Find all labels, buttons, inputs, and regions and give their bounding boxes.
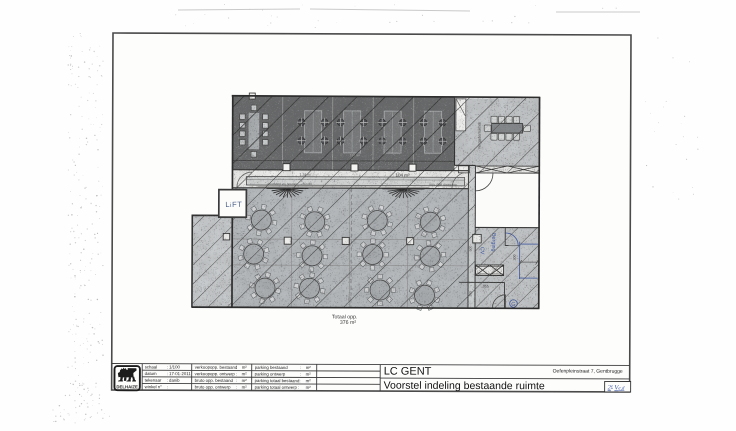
- svg-text:Oefenpleinstraat 7, Gentbrugge: Oefenpleinstraat 7, Gentbrugge: [553, 368, 623, 374]
- svg-text:LC GENT: LC GENT: [384, 366, 432, 378]
- svg-text:: danib: : danib: [167, 378, 181, 383]
- svg-text:: 17-01-2011: : 17-01-2011: [167, 371, 192, 376]
- svg-text:parking totaal bestaand:: parking totaal bestaand:: [255, 378, 301, 383]
- svg-text:m²: m²: [306, 372, 312, 377]
- svg-text:parking totaal ontwerp :: parking totaal ontwerp :: [255, 385, 300, 390]
- svg-text:bruto opp. ontwerp: bruto opp. ontwerp: [195, 384, 231, 389]
- svg-text::: :: [167, 384, 168, 389]
- svg-text:datum: datum: [145, 371, 157, 376]
- svg-text::: :: [300, 372, 301, 377]
- svg-text:m²: m²: [242, 365, 248, 370]
- svg-text:tekenaar: tekenaar: [145, 378, 162, 383]
- svg-text:winkel n°: winkel n°: [145, 384, 163, 389]
- svg-text:bruto opp. bestaand: bruto opp. bestaand: [195, 378, 234, 383]
- svg-text:parking bestaand: parking bestaand: [255, 365, 289, 370]
- svg-text:m²: m²: [306, 365, 312, 370]
- svg-text:m²: m²: [306, 385, 312, 390]
- svg-text:: 1/100: : 1/100: [167, 365, 181, 370]
- svg-text:LiFT: LiFT: [225, 200, 242, 209]
- svg-text:DELHAIZE: DELHAIZE: [116, 384, 138, 389]
- svg-text:verkoopopp. bestaand: verkoopopp. bestaand: [195, 365, 238, 370]
- svg-text:m²: m²: [242, 371, 248, 376]
- svg-text::: :: [236, 371, 237, 376]
- svg-text:parking ontwerp: parking ontwerp: [255, 371, 286, 376]
- svg-text:m²: m²: [306, 378, 312, 383]
- svg-text:m²: m²: [242, 385, 248, 390]
- svg-text:376 m²: 376 m²: [340, 320, 356, 326]
- svg-text::: :: [236, 378, 237, 383]
- svg-text:verkoopopp. ontwerp: verkoopopp. ontwerp: [195, 371, 236, 376]
- svg-text:schaal: schaal: [145, 364, 157, 369]
- svg-text:Voorstel indeling bestaande ru: Voorstel indeling bestaande ruimte: [384, 380, 545, 393]
- svg-text:m²: m²: [242, 378, 248, 383]
- svg-text::: :: [300, 365, 301, 370]
- svg-text::: :: [236, 365, 237, 370]
- svg-text::: :: [236, 385, 237, 390]
